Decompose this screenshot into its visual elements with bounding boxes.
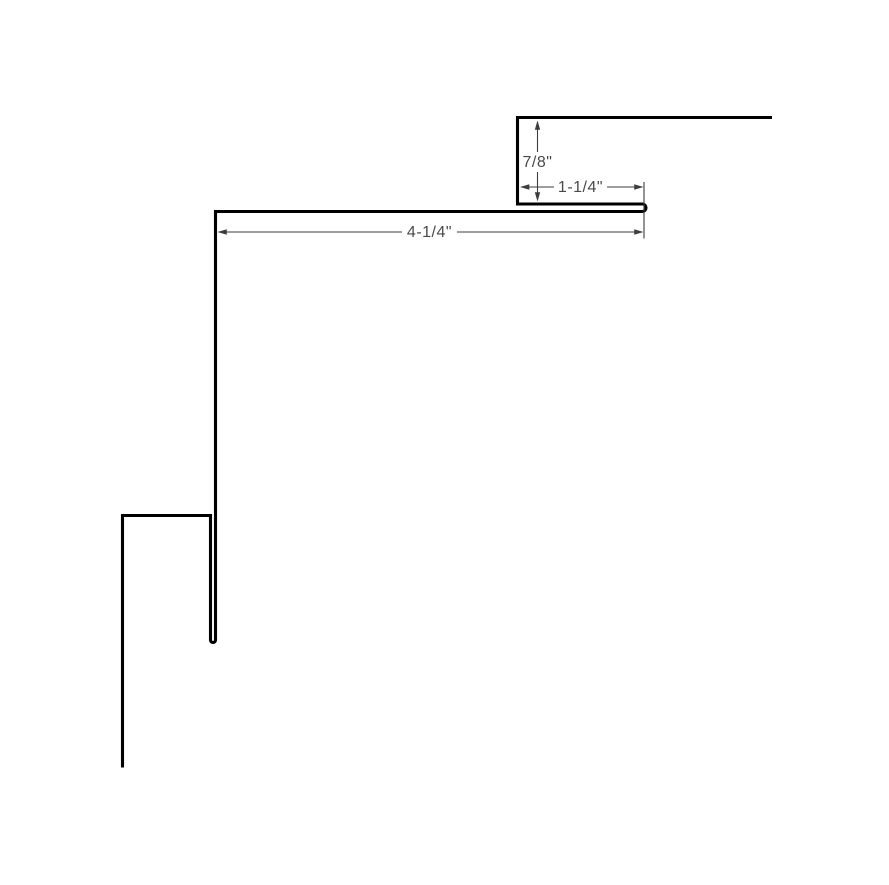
dim-4-14-label: 4-1/4" [407,224,452,241]
dimension-top-run-length: 4-1/4" [218,224,644,241]
drawing-canvas: 7/8" 1-1/4" 4-1/4" [0,0,889,885]
profile-outline [123,118,773,768]
dim-1-14-arrow-left-icon [520,184,529,189]
dim-1-14-arrow-right-icon [634,184,643,189]
dim-7-8-label: 7/8" [523,154,553,171]
dim-7-8-arrow-up-icon [535,121,540,130]
dim-1-14-label: 1-1/4" [558,179,603,196]
dimension-leg-height: 7/8" [523,121,553,202]
dim-4-14-arrow-left-icon [218,229,227,234]
dim-7-8-arrow-down-icon [535,192,540,201]
dim-4-14-arrow-right-icon [634,229,643,234]
profile-drawing: 7/8" 1-1/4" 4-1/4" [0,0,889,885]
